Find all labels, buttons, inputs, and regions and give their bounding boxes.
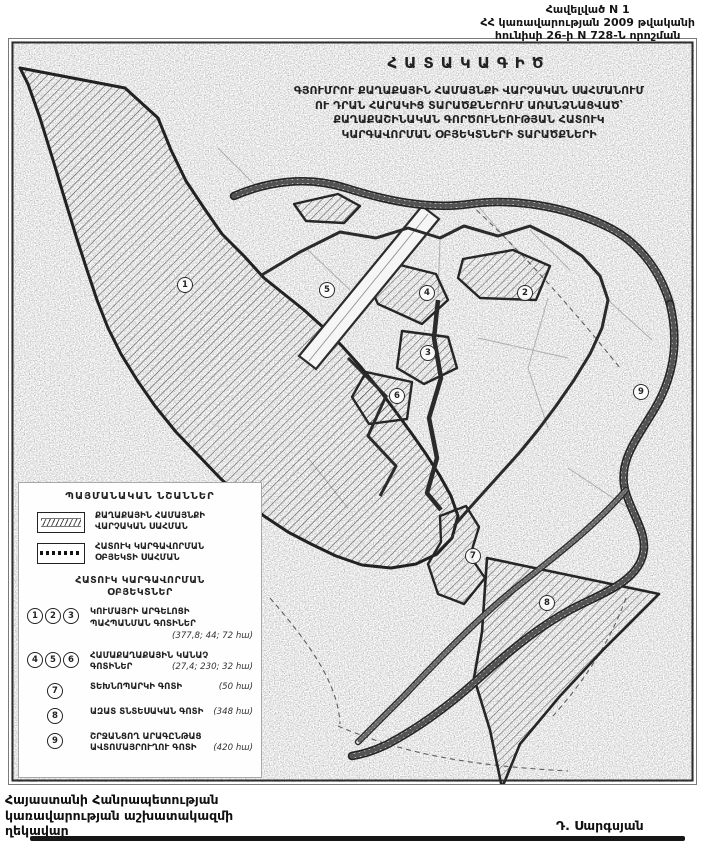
zone-number-badge: 3 — [63, 608, 79, 624]
object-label-line: ՊԱՀՊԱՆՄԱՆ ԳՈՏԻՆԵՐ — [90, 619, 253, 631]
map-area: ՀԱՏԱԿԱԳԻԾ ԳՅՈՒՄՐՈՒ ՔԱՂԱՔԱՅԻՆ ՀԱՄԱՅՆՔԻ ՎԱ… — [8, 38, 697, 785]
object-area-value: (27,4; 230; 32 հա) — [172, 662, 253, 674]
zone-number-badge: 2 — [45, 608, 61, 624]
plan-label: ՀԱՏԱԿԱԳԻԾ — [246, 54, 692, 72]
zone-number-badge: 9 — [47, 733, 63, 749]
scan-edge-artifact — [30, 836, 685, 841]
map-marker-4: 4 — [419, 285, 435, 301]
map-title-line: ԿԱՐԳԱՎՈՐՄԱՆ ՕԲՅԵԿՏՆԵՐԻ ՏԱՐԱԾՔՆԵՐԻ — [246, 128, 692, 143]
zone-number-badge: 4 — [27, 652, 43, 668]
object-label-line: ԱՎՏՈՄԱՅՐՈՒՂՈՒ ԳՈՏԻ — [90, 743, 197, 755]
signatory-title: Հայաստանի Հանրապետության կառավարության ա… — [5, 792, 233, 839]
object-area-value: (50 հա) — [219, 682, 253, 694]
map-title-line: ԳՅՈՒՄՐՈՒ ՔԱՂԱՔԱՅԻՆ ՀԱՄԱՅՆՔԻ ՎԱՐՉԱԿԱՆ ՍԱՀ… — [246, 84, 692, 99]
map-marker-7: 7 — [465, 548, 481, 564]
legend-label-line: ՎԱՐՉԱԿԱՆ ՍԱՀՄԱՆ — [95, 522, 205, 533]
object-label-line: ԱԶԱՏ ՏՆՏԵՍԱԿԱՆ ԳՈՏԻ — [90, 707, 203, 719]
map-marker-6: 6 — [389, 388, 405, 404]
object-area-value: (377,8; 44; 72 հա) — [90, 631, 253, 643]
map-title-line: ՈՒ ԴՐԱՆ ՀԱՐԱԿԻՑ ՏԱՐԱԾՔՆԵՐՈՒՄ ԱՌԱՆՁՆԱՑՎԱԾ… — [246, 99, 692, 114]
map-marker-3: 3 — [420, 345, 436, 361]
legend-object-row: 4 5 6 ՀԱՄԱՔԱՂԱՔԱՅԻՆ ԿԱՆԱՉ ԳՈՏԻՆԵՐ (27,4;… — [27, 651, 253, 674]
object-label-line: ԳՈՏԻՆԵՐ — [90, 662, 132, 674]
government-line: ՀՀ կառավարության 2009 թվականի — [480, 16, 695, 29]
map-title-block: ՀԱՏԱԿԱԳԻԾ ԳՅՈՒՄՐՈՒ ՔԱՂԱՔԱՅԻՆ ՀԱՄԱՅՆՔԻ ՎԱ… — [246, 54, 692, 142]
document-header: Հավելված N 1 ՀՀ կառավարության 2009 թվակա… — [480, 3, 695, 42]
map-marker-9: 9 — [633, 384, 649, 400]
legend-label-line: ՔԱՂԱՔԱՅԻՆ ՀԱՄԱՅՆՔԻ — [95, 511, 205, 522]
map-title-line: ՔԱՂԱՔԱՇԻՆԱԿԱՆ ԳՈՐԾՈՒՆԵՈՒԹՅԱՆ ՀԱՏՈՒԿ — [246, 113, 692, 128]
legend-object-row: 1 2 3 ԿՈՒՄԱՅՐԻ ԱՐԳԵԼՈՑԻ ՊԱՀՊԱՆՄԱՆ ԳՈՏԻՆԵ… — [27, 607, 253, 643]
zone-number-badge: 1 — [27, 608, 43, 624]
legend-object-row: 7 ՏԵԽՆՈՊԱՐԿԻ ԳՈՏԻ (50 հա) — [27, 682, 253, 699]
decision-line: հունիսի 26-ի N 728-Ն որոշման — [480, 29, 695, 42]
object-label-line: ՀԱՄԱՔԱՂԱՔԱՅԻՆ ԿԱՆԱՉ — [90, 651, 253, 663]
legend-admin-boundary: ՔԱՂԱՔԱՅԻՆ ՀԱՄԱՅՆՔԻ ՎԱՐՉԱԿԱՆ ՍԱՀՄԱՆ — [37, 511, 255, 533]
legend-objects-title: ՀԱՏՈՒԿ ԿԱՐԳԱՎՈՐՄԱՆ ՕԲՅԵԿՏՆԵՐ — [25, 575, 255, 599]
object-label-line: ՇՐՋԱՆՑՈՂ ԱՐԱԳԸՆԹԱՑ — [90, 732, 253, 744]
object-label-line: ԿՈՒՄԱՅՐԻ ԱՐԳԵԼՈՑԻ — [90, 607, 253, 619]
map-marker-1: 1 — [177, 277, 193, 293]
zone-number-badge: 5 — [45, 652, 61, 668]
signatory-name: Դ. Սարգսյան — [556, 818, 644, 833]
admin-boundary-symbol — [37, 512, 85, 533]
legend-object-boundary: ՀԱՏՈՒԿ ԿԱՐԳԱՎՈՐՄԱՆ ՕԲՅԵԿՏԻ ՍԱՀՄԱՆ — [37, 542, 255, 564]
zone-number-badge: 8 — [47, 708, 63, 724]
map-marker-2: 2 — [517, 285, 533, 301]
legend-label-line: ՀԱՏՈՒԿ ԿԱՐԳԱՎՈՐՄԱՆ — [95, 542, 204, 553]
legend-title: ՊԱՅՄԱՆԱԿԱՆ ՆՇԱՆՆԵՐ — [25, 491, 255, 502]
annex-number: Հավելված N 1 — [480, 3, 695, 16]
map-marker-8: 8 — [539, 595, 555, 611]
legend-object-row: 9 ՇՐՋԱՆՑՈՂ ԱՐԱԳԸՆԹԱՑ ԱՎՏՈՄԱՅՐՈՒՂՈՒ ԳՈՏԻ … — [27, 732, 253, 755]
object-boundary-symbol — [37, 543, 85, 564]
zone-number-badge: 7 — [47, 683, 63, 699]
legend-label-line: ՕԲՅԵԿՏԻ ՍԱՀՄԱՆ — [95, 553, 204, 564]
legend: ՊԱՅՄԱՆԱԿԱՆ ՆՇԱՆՆԵՐ ՔԱՂԱՔԱՅԻՆ ՀԱՄԱՅՆՔԻ ՎԱ… — [18, 482, 262, 778]
legend-object-row: 8 ԱԶԱՏ ՏՆՏԵՍԱԿԱՆ ԳՈՏԻ (348 հա) — [27, 707, 253, 724]
object-area-value: (348 հա) — [213, 707, 253, 719]
object-label-line: ՏԵԽՆՈՊԱՐԿԻ ԳՈՏԻ — [90, 682, 182, 694]
object-area-value: (420 հա) — [213, 743, 253, 755]
zone-number-badge: 6 — [63, 652, 79, 668]
map-marker-5: 5 — [319, 282, 335, 298]
